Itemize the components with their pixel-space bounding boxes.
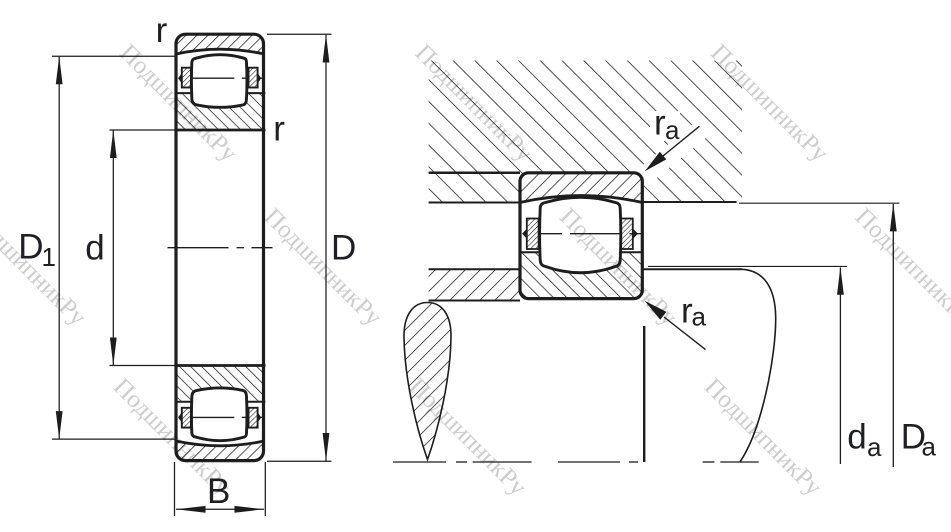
- svg-text:d: d: [85, 228, 104, 267]
- svg-text:d: d: [847, 417, 866, 456]
- svg-text:a: a: [665, 115, 680, 145]
- svg-text:r: r: [273, 110, 285, 149]
- svg-text:a: a: [867, 432, 882, 462]
- svg-text:a: a: [692, 302, 707, 332]
- svg-text:a: a: [922, 432, 937, 462]
- svg-text:r: r: [156, 11, 168, 50]
